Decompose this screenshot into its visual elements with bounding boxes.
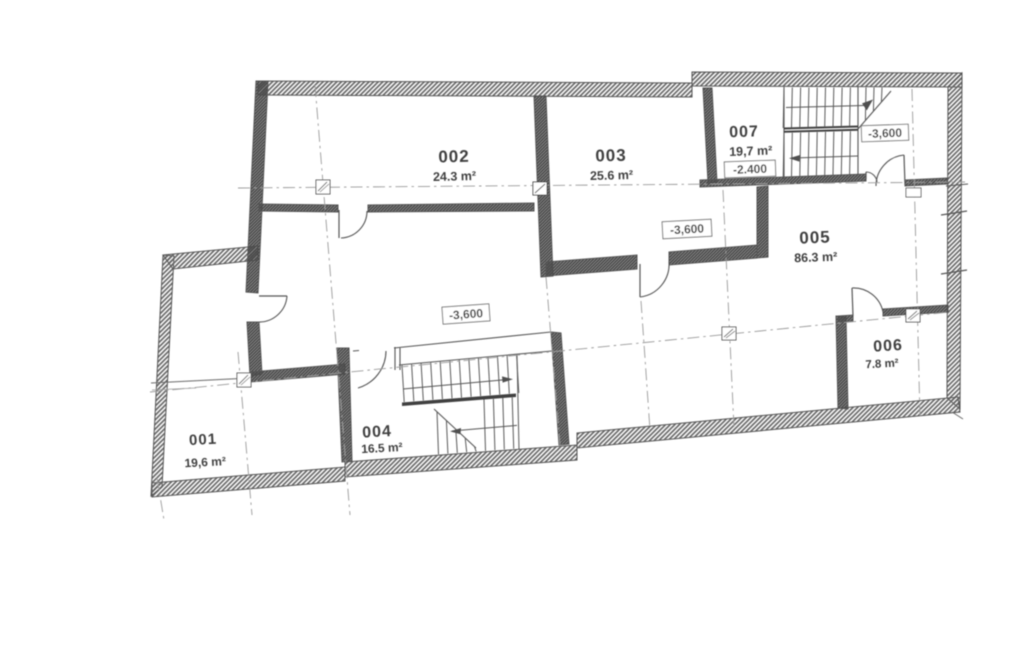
svg-text:-3,600: -3,600	[670, 221, 705, 237]
svg-text:-2.400: -2.400	[733, 162, 768, 177]
svg-text:7.8 m²: 7.8 m²	[865, 358, 899, 372]
svg-text:005: 005	[799, 228, 831, 248]
svg-text:16.5 m²: 16.5 m²	[361, 440, 403, 456]
svg-text:19,7 m²: 19,7 m²	[729, 144, 773, 159]
svg-text:003: 003	[595, 146, 627, 166]
svg-text:006: 006	[873, 337, 904, 356]
svg-text:86.3 m²: 86.3 m²	[794, 250, 838, 265]
svg-text:24.3 m²: 24.3 m²	[433, 169, 476, 184]
svg-text:19,6 m²: 19,6 m²	[184, 454, 226, 470]
svg-text:004: 004	[362, 423, 393, 442]
svg-text:007: 007	[729, 123, 759, 141]
svg-text:001: 001	[189, 431, 218, 449]
svg-text:25.6 m²: 25.6 m²	[590, 168, 633, 183]
svg-text:002: 002	[438, 147, 470, 167]
svg-text:-3,600: -3,600	[868, 126, 903, 141]
svg-text:-3,600: -3,600	[449, 306, 484, 322]
